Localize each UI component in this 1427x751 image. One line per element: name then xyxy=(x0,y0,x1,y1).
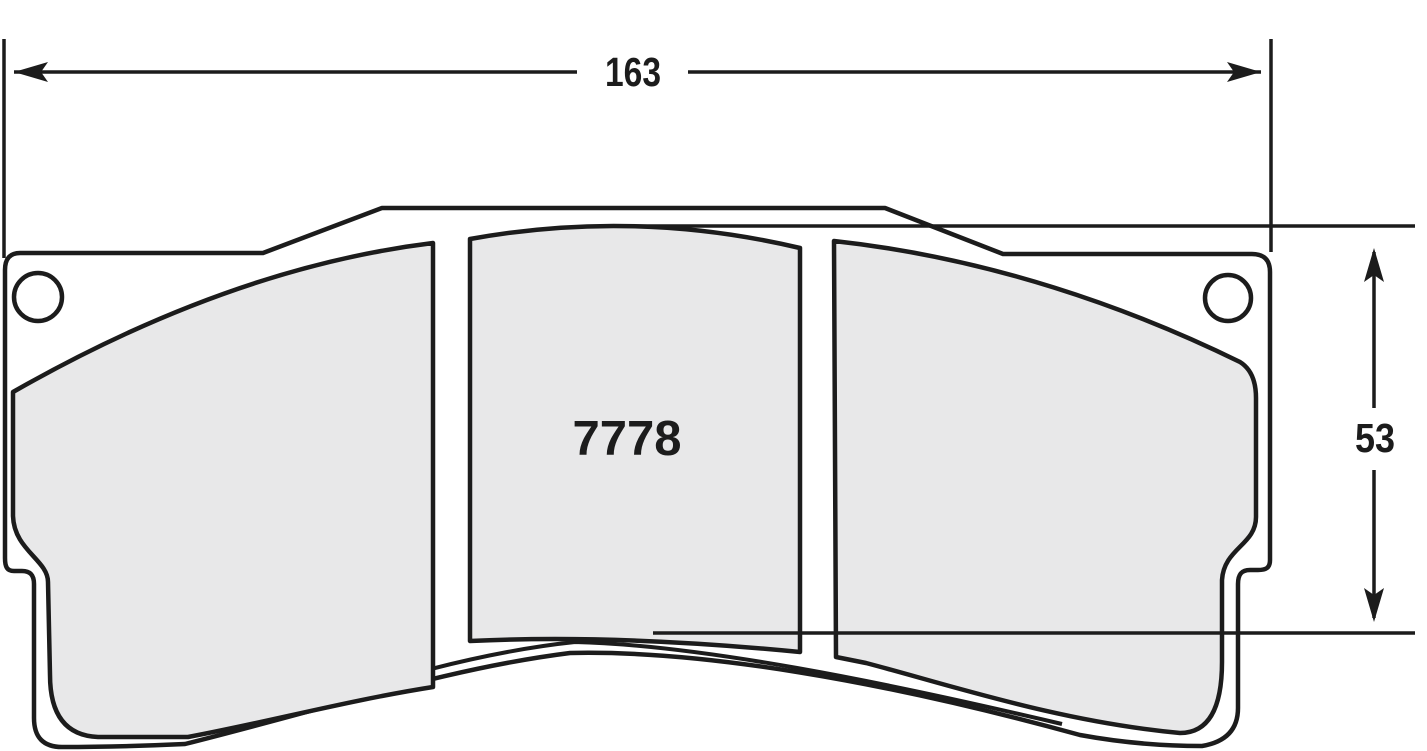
part-number-label: 7778 xyxy=(572,412,681,466)
brake-pad-drawing-page: 163 53 7778 xyxy=(0,0,1427,751)
width-dimension-label: 163 xyxy=(605,49,661,95)
mounting-hole-right xyxy=(1205,275,1251,321)
brake-pad-technical-drawing: 163 53 7778 xyxy=(0,0,1427,751)
friction-pads xyxy=(13,226,1256,737)
height-dimension-label: 53 xyxy=(1355,415,1395,461)
mounting-hole-left xyxy=(14,273,62,321)
